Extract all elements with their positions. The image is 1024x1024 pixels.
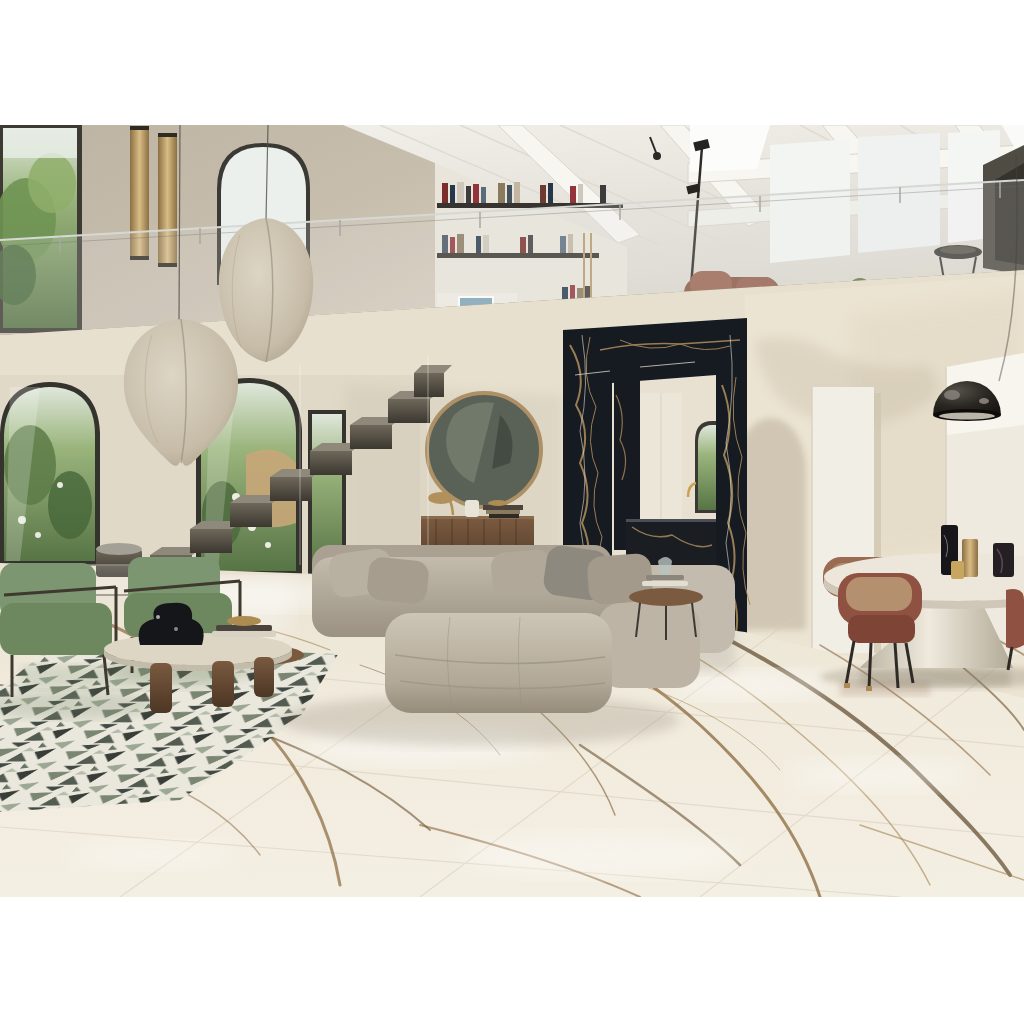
interior-scene	[0, 125, 1024, 897]
mirror	[427, 393, 541, 507]
page: { "scene": { "type": "interior-photograp…	[0, 0, 1024, 1024]
interior-photo	[0, 125, 1024, 897]
ottoman-small	[598, 603, 700, 688]
arched-window-left	[0, 382, 100, 565]
